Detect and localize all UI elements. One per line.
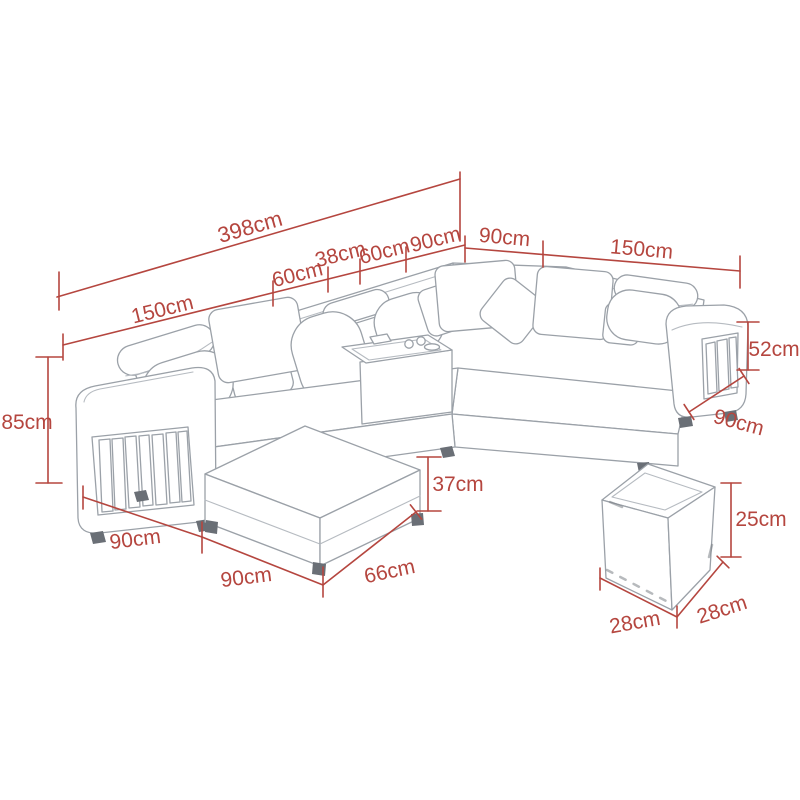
dim-label-chaise-length: 90cm <box>219 563 273 592</box>
dish-icon <box>425 344 440 350</box>
cup-icon <box>405 340 413 348</box>
sofa-dimension-diagram: 398cm 150cm 60cm 38cm 60cm 90cm 90cm 150… <box>0 0 800 800</box>
magazine-rack <box>702 333 738 399</box>
dim-ottoman-height: 25cm <box>721 483 787 557</box>
dim-label-overall-length: 398cm <box>215 206 285 248</box>
dim-label-right-depth: 90cm <box>711 405 767 441</box>
dim-label-ottoman-height: 25cm <box>735 508 786 531</box>
dim-label-right-arm-height: 52cm <box>748 338 799 361</box>
dim-label-left-width: 90cm <box>108 525 162 554</box>
dim-left-height: 85cm <box>1 357 62 483</box>
dim-label-left-height: 85cm <box>1 411 52 434</box>
product-dimension-image: 398cm 150cm 60cm 38cm 60cm 90cm 90cm 150… <box>0 0 800 800</box>
dim-label-chaise-height: 37cm <box>432 473 483 496</box>
dim-label-seg-150: 150cm <box>129 291 196 329</box>
dim-label-chaise-width: 66cm <box>362 555 417 588</box>
cup-icon <box>417 337 425 345</box>
seat-row-right <box>452 368 688 466</box>
dim-label-right-90: 90cm <box>478 224 531 251</box>
dim-chaise-height: 37cm <box>417 457 484 511</box>
dim-label-right-150: 150cm <box>609 235 674 263</box>
dim-label-seg-60b: 60cm <box>357 234 412 269</box>
dim-label-ottoman-width: 28cm <box>608 607 663 639</box>
bookshelf-books <box>92 427 194 515</box>
floral-cushion-corner-right <box>532 266 614 340</box>
dim-label-ottoman-depth: 28cm <box>694 591 750 629</box>
